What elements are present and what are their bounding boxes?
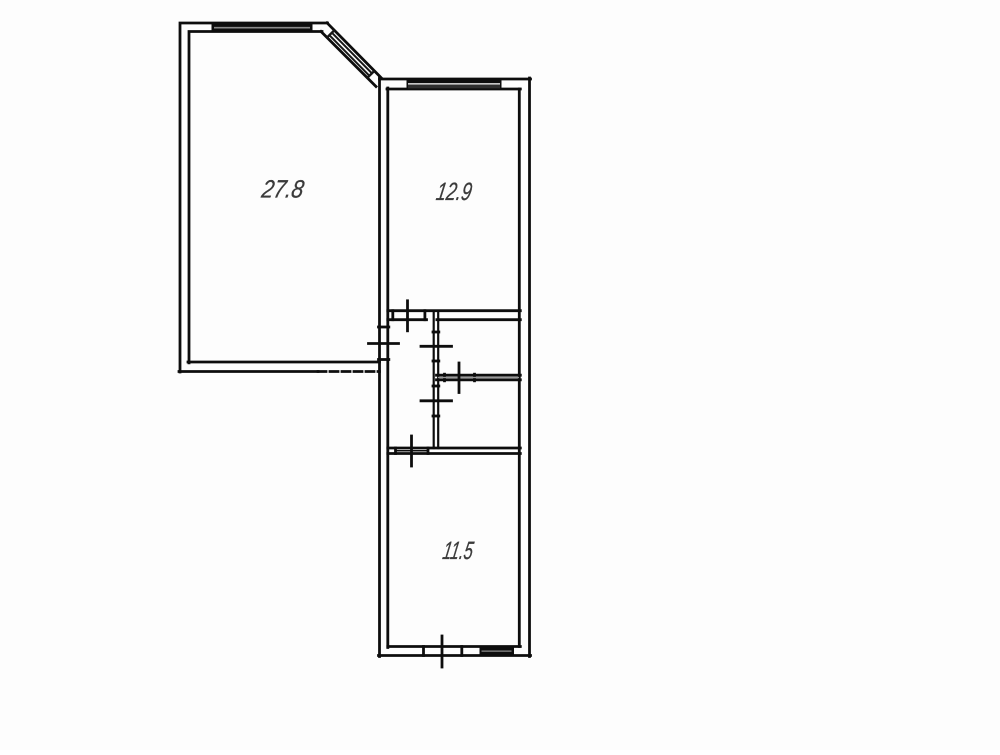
svg-text:12.9: 12.9 [434,178,474,206]
svg-text:27.8: 27.8 [259,176,306,204]
svg-text:11.5: 11.5 [441,537,477,565]
